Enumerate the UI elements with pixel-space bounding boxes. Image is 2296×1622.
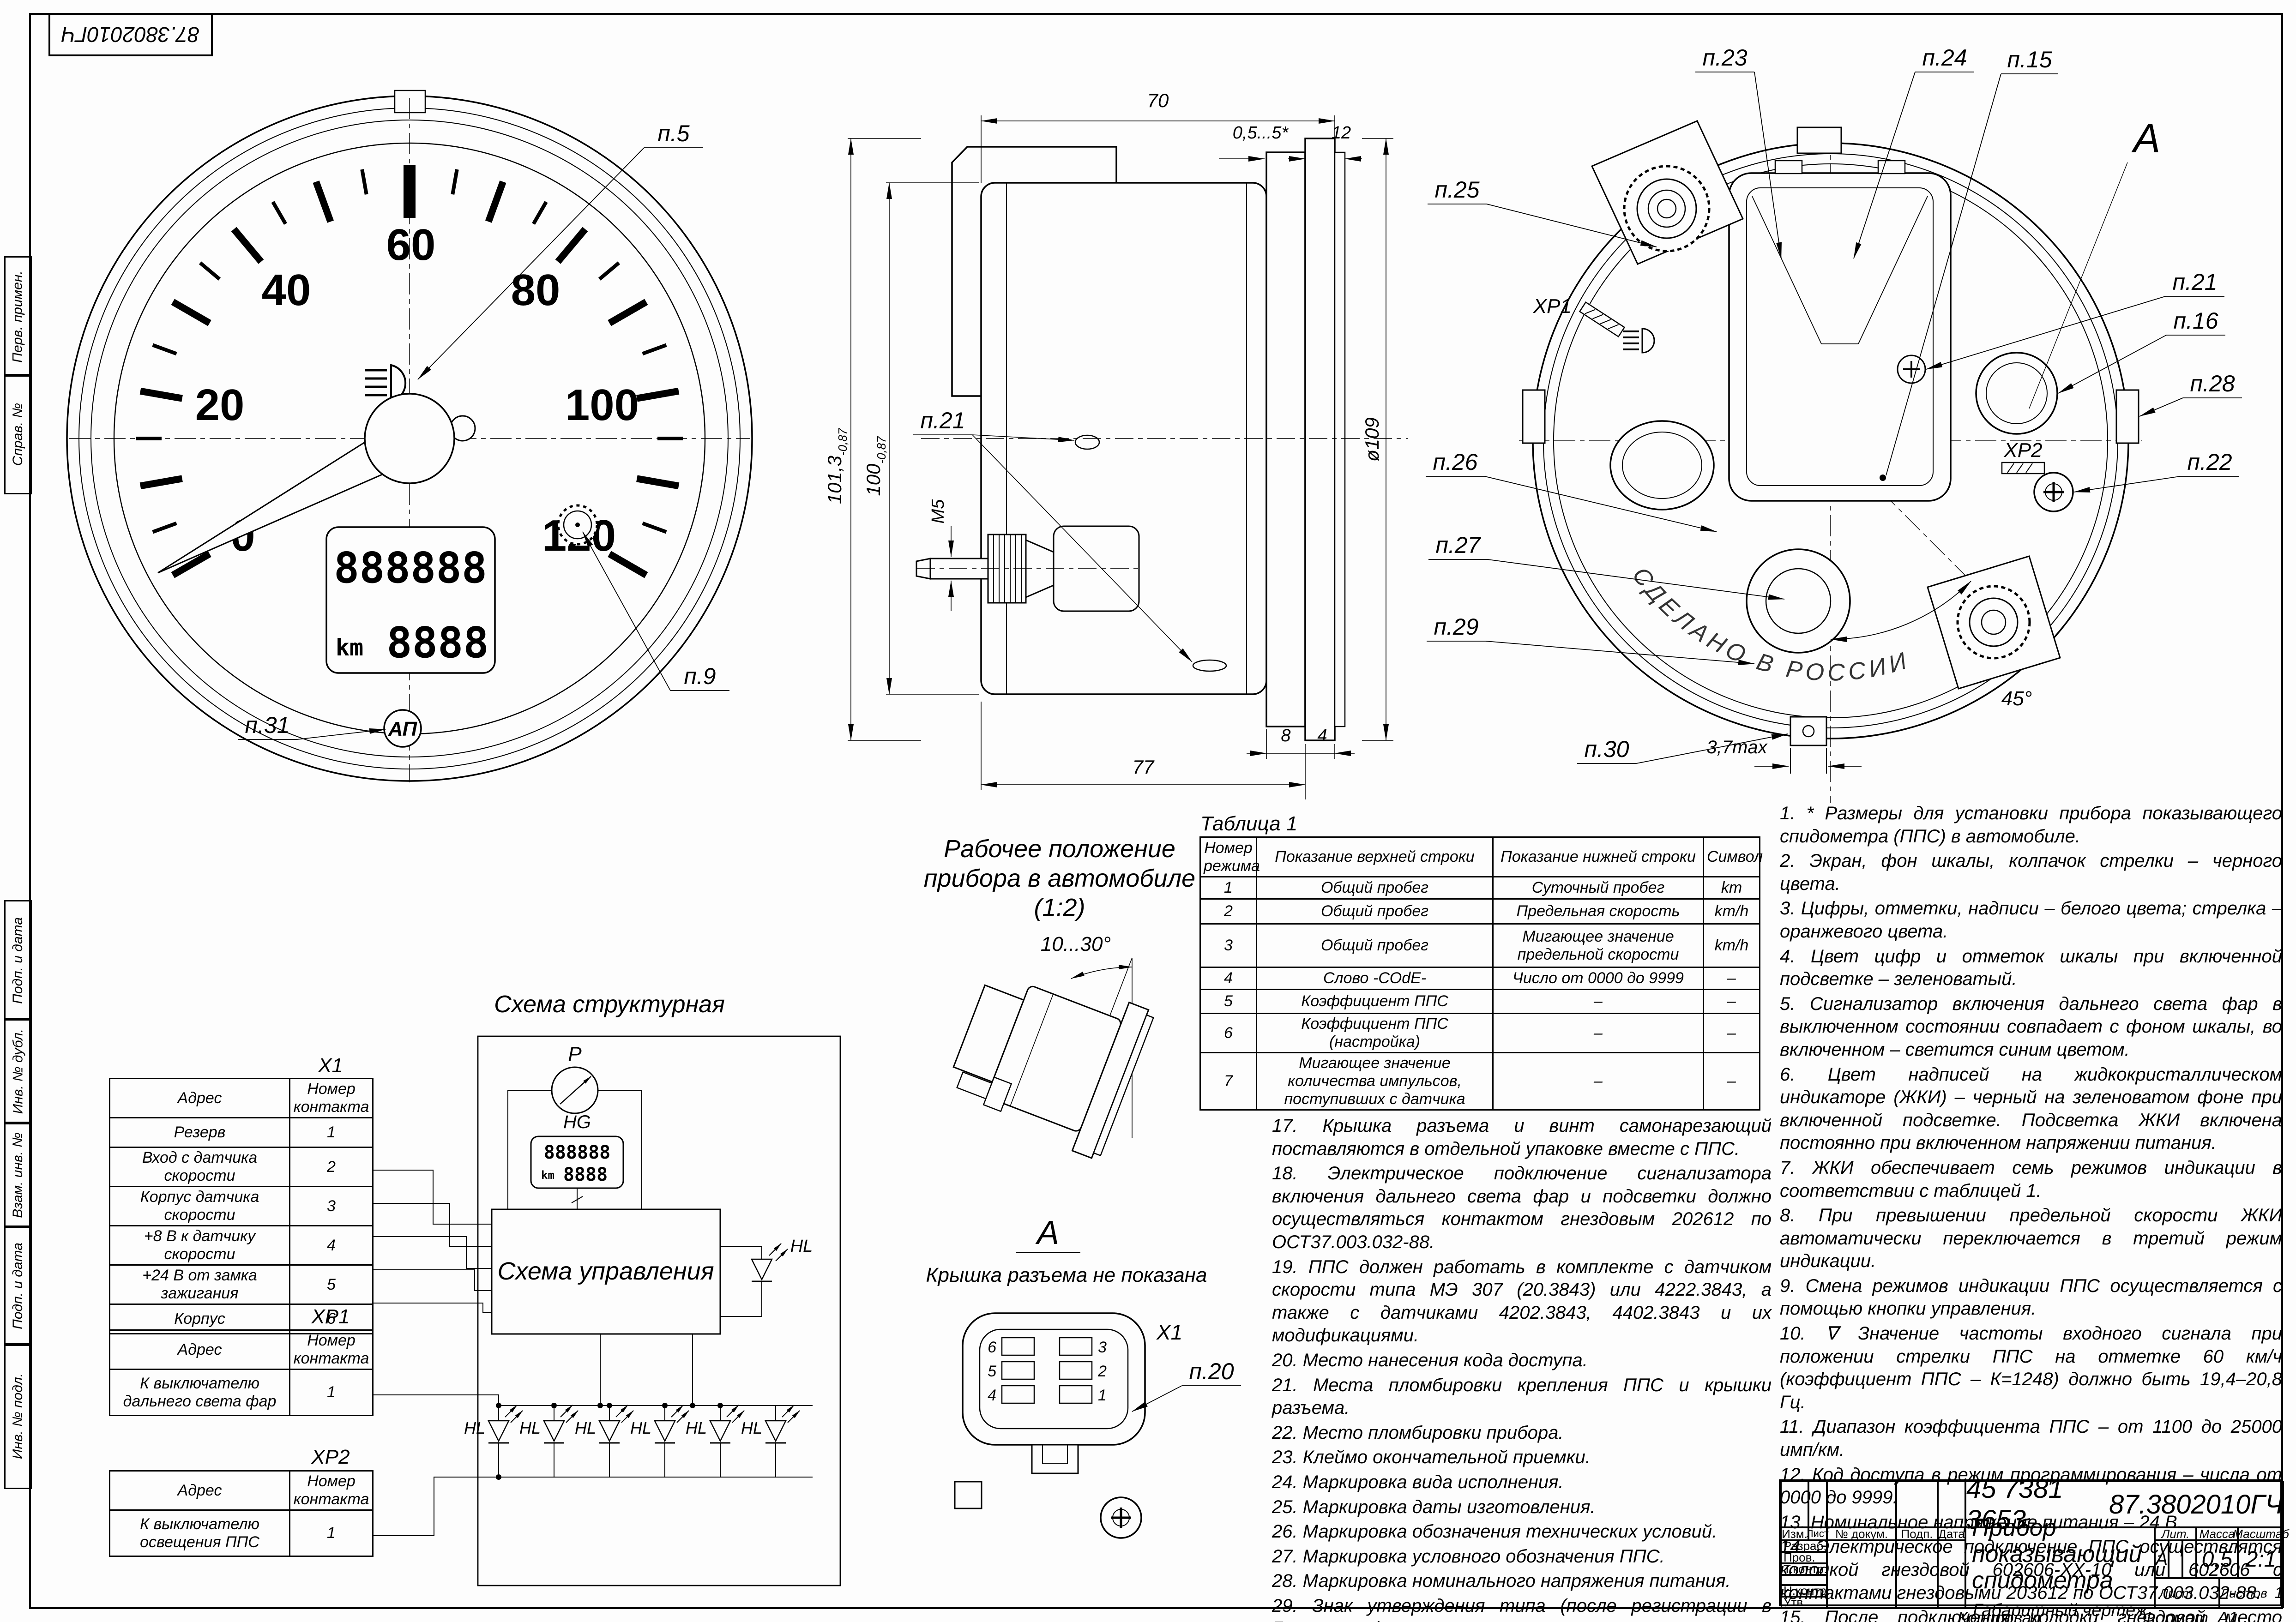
callout-p9: п.9 [684, 663, 716, 689]
pin-number: 1 [1098, 1387, 1107, 1404]
svg-text:HL: HL [686, 1418, 707, 1437]
callout-p25: п.25 [1434, 177, 1479, 203]
dim-45deg: 45° [2001, 687, 2032, 710]
pointer-unit-p: P [552, 1043, 598, 1113]
pin-slot [1002, 1362, 1034, 1379]
pin-slot [1060, 1386, 1092, 1403]
pin-number: 3 [1098, 1339, 1107, 1356]
bulb-hole-left [1610, 421, 1714, 510]
lcd-daily-km: 8888 [386, 618, 489, 667]
tb-utv: Утв. [1781, 1597, 1827, 1608]
dim-101-3: 101,3-0,87 [824, 427, 850, 504]
note-26: 26. Маркировка обозначения технических у… [1272, 1520, 1772, 1544]
callout-p20: п.20 [1189, 1358, 1234, 1384]
lcd-km-label: km [336, 634, 363, 661]
hl-led-row: HL HL HL HL HL HL [464, 1405, 800, 1477]
frame-label-podp-data-1: Подп. и дата [4, 900, 32, 1021]
adjuster-gear-top-left [1592, 121, 1743, 264]
dim-m5: М5 [928, 499, 948, 524]
tb-lit-h: Лит. [2155, 1527, 2196, 1540]
top-left-stamp: 87.3802010ГЧ [48, 13, 213, 56]
view-a-label: А [1016, 1214, 1080, 1253]
callout-p21-side: п.21 [920, 408, 965, 433]
pin-slot [1060, 1338, 1092, 1355]
pin-number: 5 [988, 1363, 996, 1380]
view-a-subtitle: Крышка разъема не показана [919, 1264, 1214, 1287]
schema-drawing: P HG 888888 km 8888 Схема управления HL [369, 1025, 886, 1606]
table1-header: Номер режима [1200, 837, 1257, 877]
title-block: Изм. Лист № докум. Подп. Дата Разраб. Пр… [1779, 1479, 2282, 1606]
tb-sheet: Лист [2155, 1578, 2219, 1608]
svg-text:HL: HL [790, 1237, 813, 1256]
side-view-drawing: 70 0,5...5* 12 ø109 101,3-0,87 100-0,87 … [799, 28, 1413, 812]
pin-slot [1060, 1362, 1092, 1379]
callout-p30: п.30 [1584, 736, 1629, 762]
notes-middle: 17. Крышка разъема и винт самонарезающий… [1272, 1115, 1772, 1622]
rim-tab-bottom [1790, 717, 1826, 745]
svg-text:km: km [541, 1169, 554, 1182]
svg-text:888888: 888888 [544, 1142, 611, 1163]
svg-text:HL: HL [464, 1418, 485, 1437]
schema-xp1-label: XP1 [289, 1305, 372, 1328]
note-23: 23. Клеймо окончательной приемки. [1272, 1446, 1772, 1469]
callout-p21-rear: п.21 [2172, 269, 2217, 295]
tb-lit: А [2155, 1540, 2169, 1578]
rim-lug-right [2116, 390, 2139, 443]
callout-p15: п.15 [2007, 47, 2052, 72]
drawing-sheet: 87.3802010ГЧ Перв. примен. Справ. № Подп… [0, 0, 2296, 1622]
dim-05-5: 0,5...5* [1233, 123, 1289, 143]
note-22: 22. Место пломбировки прибора. [1272, 1422, 1772, 1445]
label-xp2: XP2 [2003, 439, 2042, 462]
tb-mass-h: Масса [2196, 1527, 2238, 1540]
note-1: 1. * Размеры для установки прибора показ… [1780, 802, 2282, 848]
dim-100: 100-0,87 [862, 436, 888, 496]
dim-37max: 3,7max [1706, 737, 1768, 757]
scale-number-100: 100 [565, 380, 639, 430]
tb-list: Лист [1808, 1527, 1827, 1540]
note-19: 19. ППС должен работать в комплекте с да… [1272, 1256, 1772, 1347]
tb-tkontr: Т.контр. [1781, 1563, 1827, 1575]
callout-p27: п.27 [1435, 532, 1481, 558]
tb-podp: Подп. [1896, 1527, 1938, 1540]
note-8: 8. При превышении предельной скорости ЖК… [1780, 1204, 2282, 1273]
rear-view-drawing: СДЕЛАНО В РОССИИ п.23 п.24 п.15 А п.21 п… [1422, 28, 2290, 803]
svg-text:АП: АП [388, 718, 418, 740]
dim-70: 70 [1147, 90, 1169, 111]
note-18: 18. Электрическое подключение сигнализат… [1272, 1162, 1772, 1254]
tb-data: Дата [1938, 1527, 1965, 1540]
dim-12: 12 [1332, 123, 1351, 143]
tb-ndoc: № докум. [1827, 1527, 1896, 1540]
schema-title: Схема структурная [462, 991, 757, 1018]
lcd-odometer: 888888 km 8888 [326, 527, 495, 673]
tb-scale-h: Масштаб [2238, 1527, 2284, 1540]
control-circuit-box: Схема управления [492, 1209, 720, 1334]
callout-p24: п.24 [1922, 45, 1967, 71]
glass [1335, 152, 1345, 727]
note-17: 17. Крышка разъема и винт самонарезающий… [1272, 1115, 1772, 1160]
sealing-screw-right [2034, 473, 2073, 511]
bezel-top-tab [395, 90, 425, 113]
svg-text:8888: 8888 [563, 1164, 608, 1185]
lcd-total-km: 888888 [334, 543, 487, 593]
callout-p5: п.5 [657, 120, 689, 146]
working-position-line2: прибора в автомобиле [898, 864, 1221, 894]
dim-8: 8 [1281, 726, 1290, 745]
svg-text:HL: HL [575, 1418, 596, 1437]
connector-view-drawing: 6 5 4 3 2 1 X1 п.20 [914, 1292, 1265, 1569]
bezel-rim [1305, 138, 1335, 740]
schema-xp1-table: АдресНомер контакта К выключателю дальне… [109, 1329, 374, 1416]
schema-xp2-label: XP2 [289, 1446, 372, 1469]
tilted-device [941, 952, 1156, 1160]
callout-p16: п.16 [2173, 308, 2218, 334]
note-2: 2. Экран, фон шкалы, колпачок стрелки – … [1780, 850, 2282, 895]
note-11: 11. Диапазон коэффициента ППС – от 1100 … [1780, 1416, 2282, 1461]
note-4: 4. Цвет цифр и отметок шкалы при включен… [1780, 945, 2282, 991]
scale-number-20: 20 [195, 380, 245, 430]
scale-number-40: 40 [262, 265, 311, 315]
tb-scale: 2:1 [2238, 1540, 2284, 1578]
dim-dia109: ø109 [1361, 417, 1383, 462]
scale-number-80: 80 [511, 265, 560, 315]
frame-label-inv-podl: Инв. № подл. [4, 1343, 32, 1489]
tb-sheets: Листов 1 [2219, 1578, 2284, 1608]
note-28: 28. Маркировка номинального напряжения п… [1272, 1570, 1772, 1593]
svg-text:HL: HL [519, 1418, 541, 1437]
frame-label-podp-data-2: Подп. и дата [4, 1226, 32, 1346]
callout-p29: п.29 [1434, 614, 1478, 640]
scale-number-60: 60 [386, 220, 436, 270]
callout-p28: п.28 [2190, 371, 2235, 396]
connector-latch [1032, 1445, 1078, 1473]
working-position-title: Рабочее положение прибора в автомобиле (… [898, 835, 1221, 923]
center-boss [1747, 549, 1850, 653]
dim-4: 4 [1317, 726, 1327, 745]
tb-doc-name: Прибор показывающий спидометра Габаритны… [1965, 1527, 2155, 1608]
note-24: 24. Маркировка вида исполнения. [1272, 1471, 1772, 1494]
note-10: 10. ∇ Значение частоты входного сигнала … [1780, 1322, 2282, 1414]
pin-slot [1002, 1338, 1034, 1355]
schema-x1-label: X1 [289, 1054, 372, 1077]
svg-text:HL: HL [741, 1418, 762, 1437]
xp2-pin [2002, 463, 2044, 474]
stamp-code: 87.3802010ГЧ [61, 22, 199, 47]
table1-caption: Таблица 1 [1200, 812, 1297, 835]
copied-label: Копировал [1930, 1608, 2068, 1622]
svg-text:Схема управления: Схема управления [497, 1257, 714, 1285]
pin-slot [1002, 1386, 1034, 1403]
bulb-hole-right [1976, 353, 2057, 434]
lcd-unit-hg: HG 888888 km 8888 [531, 1112, 623, 1209]
front-view-drawing: 0 20 40 60 80 100 120 km/h 888888 km 888… [28, 83, 803, 812]
note-25: 25. Маркировка даты изготовления. [1272, 1496, 1772, 1519]
high-beam-icon-rear [1623, 329, 1654, 353]
brand-logo: АП [384, 710, 421, 747]
frame-label-inv-dubl: Инв. № дубл. [4, 1018, 32, 1124]
working-position-line1: Рабочее положение [898, 835, 1221, 864]
schema-xp2-table: АдресНомер контакта К выключателю освеще… [109, 1470, 374, 1557]
svg-text:HL: HL [630, 1418, 651, 1437]
dim-77: 77 [1133, 756, 1155, 778]
seal-hole-2 [1193, 660, 1226, 671]
schema-x1-table: АдресНомер контакта Резерв1 Вход с датчи… [109, 1078, 374, 1334]
pin-number: 4 [988, 1387, 996, 1404]
self-tapping-screw [1101, 1497, 1141, 1538]
label-xp1: XP1 [1533, 295, 1572, 318]
bezel-ring [1266, 152, 1305, 727]
seal-hole-1 [1075, 435, 1099, 449]
svg-text:HG: HG [563, 1112, 591, 1132]
connector-housing [1729, 173, 1951, 501]
note-29: 29. Знак утверждения типа (после регистр… [1272, 1595, 1772, 1622]
note-20: 20. Место нанесения кода доступа. [1272, 1349, 1772, 1372]
hl-led-right: HL [720, 1237, 813, 1316]
connector-x1-label: X1 [1156, 1320, 1182, 1344]
note-27: 27. Маркировка условного обозначения ППС… [1272, 1545, 1772, 1568]
tb-mass: 0,5 [2196, 1540, 2238, 1578]
table1: Номер режима Показание верхней строки По… [1199, 836, 1760, 1111]
frame-label-vzam: Взам. инв. № [4, 1122, 32, 1228]
callout-p23: п.23 [1702, 45, 1747, 71]
note-7: 7. ЖКИ обеспечивает семь режимов индикац… [1780, 1157, 2282, 1202]
dim-angle-10-30: 10...30° [1041, 933, 1111, 955]
needle-hub [365, 394, 454, 483]
note-3: 3. Цифры, отметки, надписи – белого цвет… [1780, 897, 2282, 943]
reset-knob[interactable] [558, 505, 597, 544]
rim-tab-top [1797, 127, 1841, 153]
callout-p26: п.26 [1433, 449, 1477, 475]
svg-text:P: P [568, 1043, 582, 1065]
code-area [955, 1482, 982, 1508]
view-label-a: А [2131, 115, 2161, 161]
pin-number: 2 [1097, 1363, 1107, 1380]
note-6: 6. Цвет надписей на жидкокристаллическом… [1780, 1063, 2282, 1155]
pin-number: 6 [988, 1339, 996, 1356]
note-21: 21. Места пломбировки крепления ППС и кр… [1272, 1374, 1772, 1420]
tb-izm: Изм. [1781, 1527, 1808, 1540]
working-position-drawing: 10...30° [877, 919, 1247, 1177]
note-9: 9. Смена режимов индикации ППС осуществл… [1780, 1275, 2282, 1321]
format-label: Формат А1 [2142, 1608, 2281, 1622]
rim-lug-left [1523, 390, 1545, 443]
callout-p31: п.31 [245, 712, 289, 738]
adjuster-gear-bottom-right [1928, 556, 2060, 689]
note-5: 5. Сигнализатор включения дальнего света… [1780, 993, 2282, 1062]
callout-p22: п.22 [2187, 449, 2232, 475]
xp1-pin [1580, 302, 1625, 337]
